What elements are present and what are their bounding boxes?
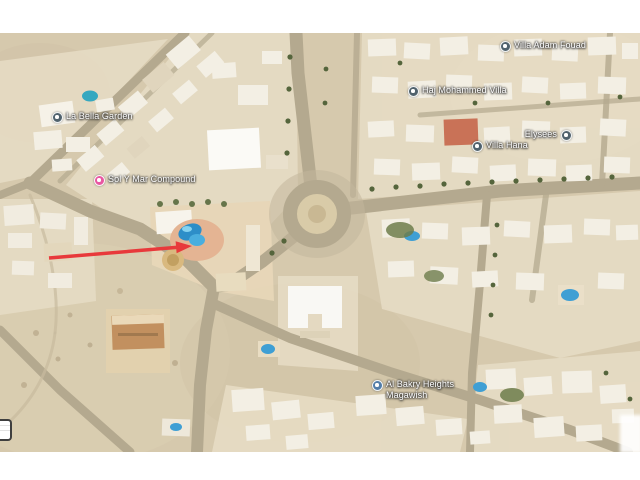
poi-circle-icon [472, 141, 483, 152]
screenshot-page: La Bella GardenSol Y Mar CompoundHaj Moh… [0, 0, 640, 480]
poi-circle-icon [52, 112, 63, 123]
poi-circle-icon [561, 130, 572, 141]
map-marker-label: Villa Adam Fouad [514, 40, 586, 51]
map-labels-layer: La Bella GardenSol Y Mar CompoundHaj Moh… [0, 33, 640, 452]
map-marker-label: Al Bakry HeightsMagawish [386, 379, 454, 400]
poi-circle-icon [500, 41, 511, 52]
map-marker-label: Sol Y Mar Compound [108, 174, 196, 185]
poi-circle-icon [408, 86, 419, 97]
poi-circle-icon [372, 380, 383, 391]
poi-circle-icon [94, 175, 105, 186]
map-canvas[interactable]: La Bella GardenSol Y Mar CompoundHaj Moh… [0, 33, 640, 452]
map-marker-label: La Bella Garden [66, 111, 133, 122]
map-marker-label: Haj Mohammed Villa [422, 85, 507, 96]
map-marker-label: Elysees [525, 129, 557, 140]
map-marker-label: Villa Hana [486, 140, 528, 151]
